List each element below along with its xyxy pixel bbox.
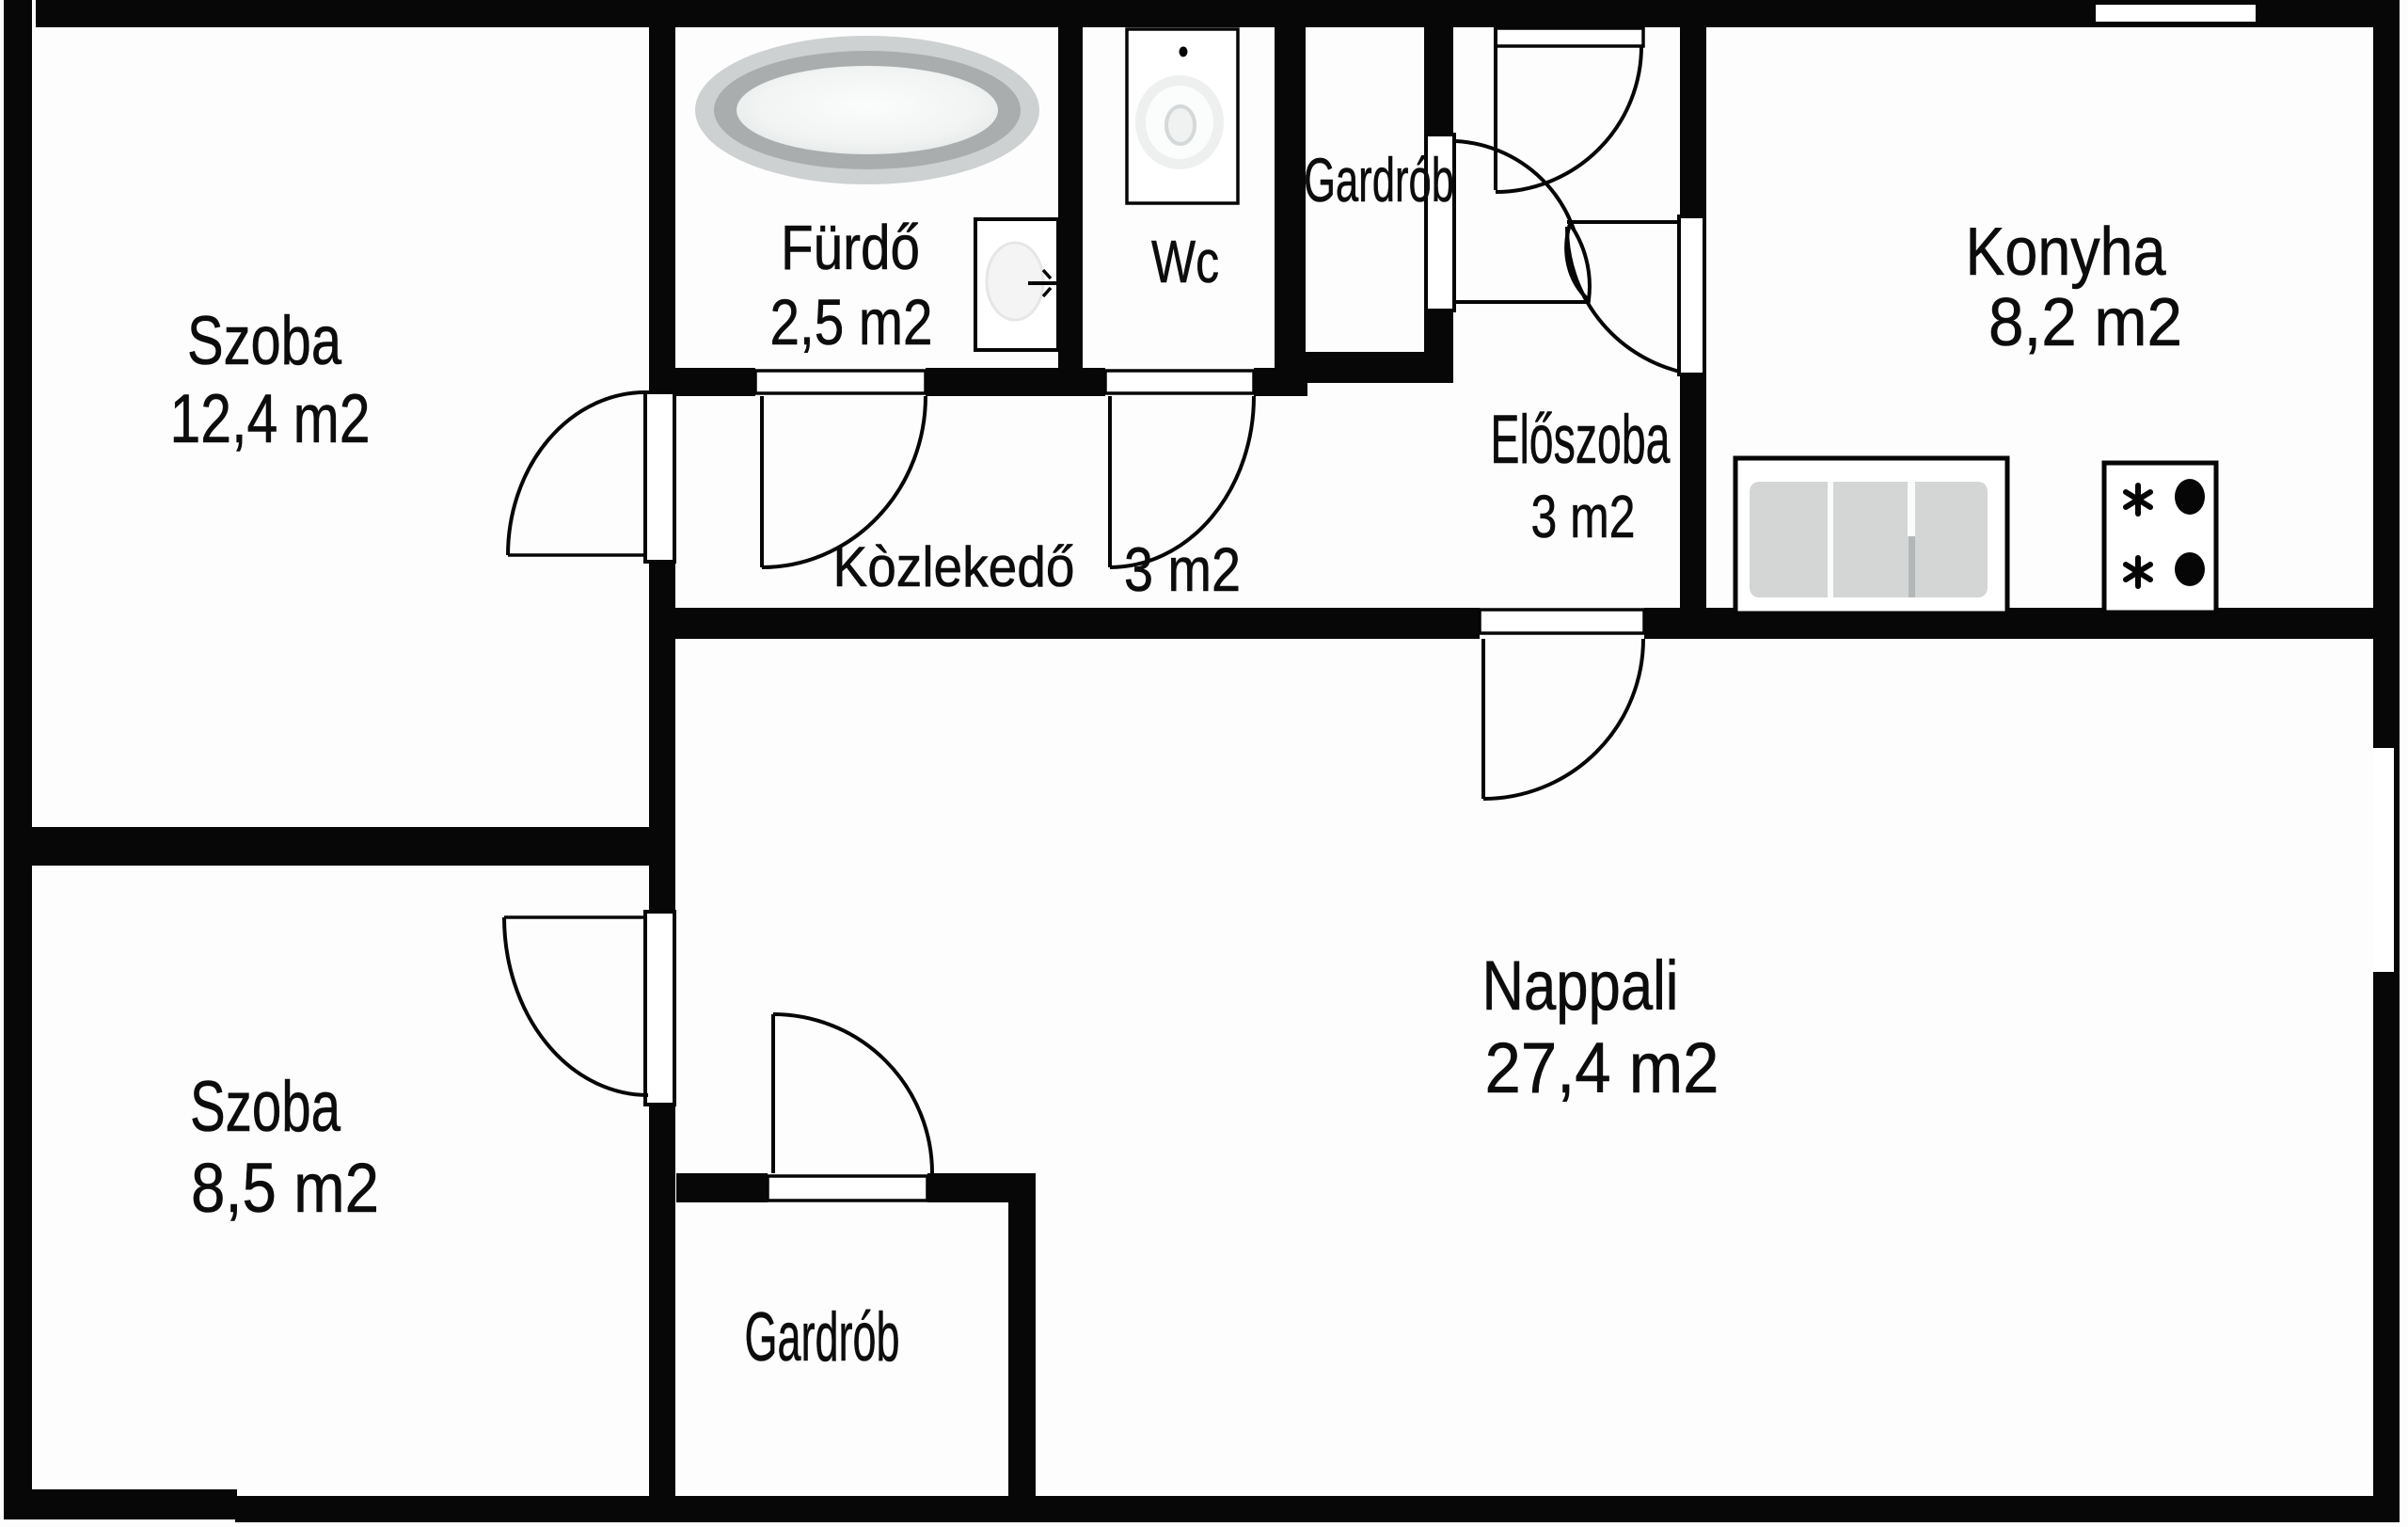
svg-text:Kòzlekedő: Kòzlekedő xyxy=(833,535,1075,598)
svg-text:3 m2: 3 m2 xyxy=(1124,534,1241,604)
svg-text:Szoba: Szoba xyxy=(190,1067,341,1147)
svg-text:Gardrób: Gardrób xyxy=(1304,145,1454,215)
svg-text:Előszoba: Előszoba xyxy=(1491,402,1671,478)
svg-text:Fürdő: Fürdő xyxy=(781,213,920,283)
svg-text:Wc: Wc xyxy=(1151,228,1219,295)
svg-text:2,5 m2: 2,5 m2 xyxy=(770,286,933,358)
svg-text:27,4 m2: 27,4 m2 xyxy=(1485,1028,1719,1108)
svg-text:Konyha: Konyha xyxy=(1966,215,2167,290)
svg-text:Gardrób: Gardrób xyxy=(745,1299,900,1376)
svg-text:Szoba: Szoba xyxy=(187,303,341,379)
svg-text:8,2 m2: 8,2 m2 xyxy=(1988,285,2182,360)
svg-text:12,4 m2: 12,4 m2 xyxy=(170,381,371,457)
svg-text:Nappali: Nappali xyxy=(1482,946,1679,1025)
svg-text:3 m2: 3 m2 xyxy=(1531,483,1636,550)
svg-text:8,5 m2: 8,5 m2 xyxy=(191,1149,379,1227)
